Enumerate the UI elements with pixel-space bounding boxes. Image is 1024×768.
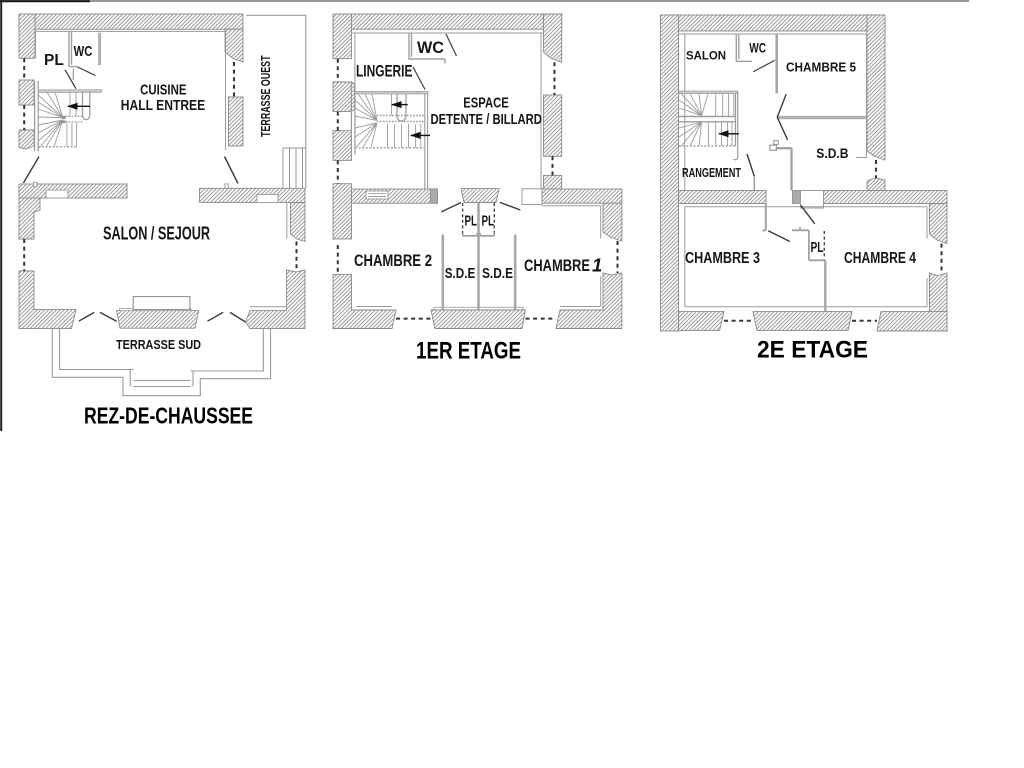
svg-text:LINGERIE: LINGERIE <box>356 63 413 81</box>
svg-text:S.D.B: S.D.B <box>816 146 848 162</box>
svg-text:CHAMBRE 4: CHAMBRE 4 <box>844 250 916 267</box>
svg-text:ESPACE: ESPACE <box>463 96 509 112</box>
svg-text:RANGEMENT: RANGEMENT <box>682 165 741 180</box>
svg-text:S.D.E: S.D.E <box>445 265 476 282</box>
svg-text:TERRASSE SUD: TERRASSE SUD <box>116 337 201 352</box>
svg-text:CHAMBRE 2: CHAMBRE 2 <box>354 252 432 270</box>
svg-text:1ER ETAGE: 1ER ETAGE <box>416 339 521 365</box>
svg-text:SALON: SALON <box>686 51 726 63</box>
svg-text:REZ-DE-CHAUSSEE: REZ-DE-CHAUSSEE <box>84 403 253 429</box>
svg-text:HALL ENTREE: HALL ENTREE <box>121 98 206 114</box>
svg-text:WC: WC <box>749 39 766 55</box>
svg-text:TERRASSE OUEST: TERRASSE OUEST <box>259 55 273 137</box>
svg-text:CHAMBRE 3: CHAMBRE 3 <box>685 250 760 267</box>
svg-text:WC: WC <box>417 39 444 57</box>
svg-text:CHAMBRE: CHAMBRE <box>524 257 590 275</box>
svg-text:CUISINE: CUISINE <box>140 83 187 99</box>
svg-text:PL: PL <box>811 240 824 256</box>
svg-text:PL: PL <box>465 214 478 230</box>
svg-text:1: 1 <box>592 255 602 276</box>
svg-text:WC: WC <box>74 44 93 60</box>
svg-text:DETENTE / BILLARD: DETENTE / BILLARD <box>431 112 542 128</box>
svg-text:S.D.E: S.D.E <box>482 265 513 282</box>
svg-text:PL: PL <box>44 52 64 69</box>
svg-text:2E ETAGE: 2E ETAGE <box>757 337 868 364</box>
svg-text:CHAMBRE 5: CHAMBRE 5 <box>786 61 856 75</box>
svg-text:SALON / SEJOUR: SALON / SEJOUR <box>103 222 210 243</box>
svg-text:PL: PL <box>482 214 495 230</box>
